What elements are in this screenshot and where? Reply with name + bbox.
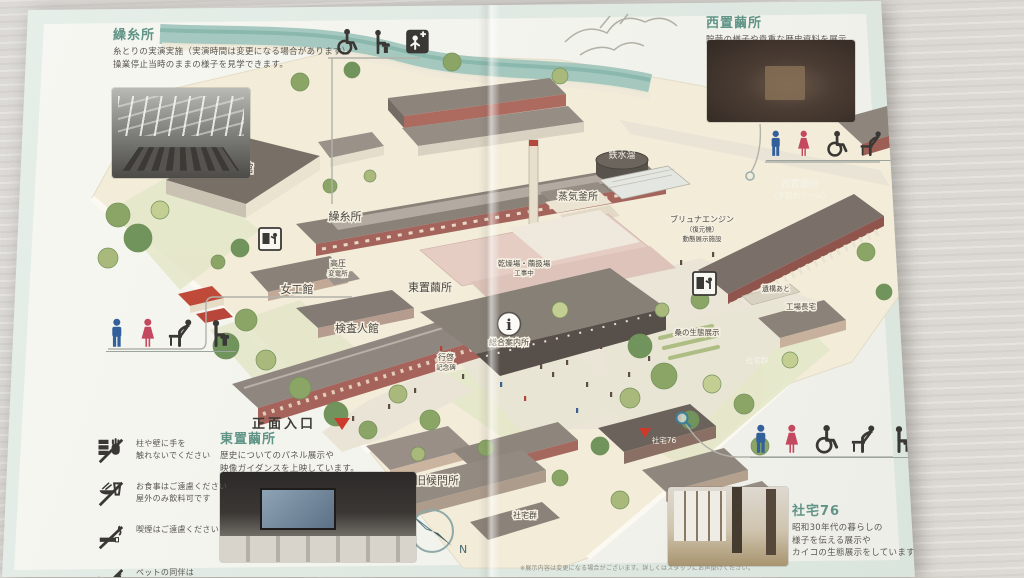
panel-east-warehouse: 東置繭所 歴史についてのパネル展示や 映像ガイダンスを上映しています。	[220, 428, 420, 475]
main-entrance-marker	[334, 418, 350, 430]
main-entrance-label: 正面入口	[252, 413, 316, 432]
no-pets-icon	[96, 565, 126, 578]
first-aid-icon-slot	[895, 130, 920, 157]
rule-text: 柱や壁に手を触れないでください	[136, 436, 210, 461]
wheelchair-icon-slot	[823, 130, 850, 157]
facility-icon-row-west	[766, 130, 920, 161]
toilet-icon	[206, 318, 236, 348]
panel-east-desc1: 歴史についてのパネル展示や	[220, 450, 420, 463]
visiting-rules-list: 柱や壁に手を触れないでくださいお食事はご遠慮ください屋外のみ飲料可です喫煙はご遠…	[96, 436, 246, 578]
svg-text:i: i	[506, 316, 512, 334]
rule-item: お食事はご遠慮ください屋外のみ飲料可です	[96, 479, 246, 513]
map-label: 高圧変電所	[328, 258, 348, 278]
wheelchair-icon	[823, 130, 850, 157]
riverbank-sketch	[565, 14, 677, 55]
panel-reeling-desc2: 操業停止当時のままの様子を見学できます。	[113, 59, 413, 72]
toilet-icon-slot	[206, 318, 236, 348]
exhibit-icon	[693, 272, 716, 295]
exhibit-icon	[259, 228, 281, 250]
information-icon: i	[498, 313, 521, 336]
photographed-pamphlet-scene: N i 総合案内所	[0, 0, 1024, 578]
map-label: 検査人館	[335, 321, 379, 335]
mens-toilet-icon-slot	[750, 424, 772, 454]
womens-toilet-icon	[781, 424, 803, 454]
reeling-mill-photo	[112, 88, 250, 178]
no-food-icon	[96, 479, 126, 509]
map-label: 繰糸所	[329, 209, 362, 223]
rule-item: 喫煙はご遠慮ください	[96, 522, 246, 556]
toilet-icon	[889, 424, 919, 454]
rule-text: お食事はご遠慮ください屋外のみ飲料可です	[136, 479, 227, 504]
diaper-changing-icon	[859, 130, 886, 157]
map-label: 女工館	[281, 282, 314, 296]
rule-item: 柱や壁に手を触れないでください	[96, 436, 246, 470]
first-aid-icon	[405, 28, 430, 55]
wheelchair-icon-slot	[811, 424, 841, 454]
map-label: 社宅76	[652, 435, 677, 445]
first-aid-icon	[928, 424, 956, 454]
no-pets-icon	[96, 565, 126, 578]
panel-shataku-title: 社宅76	[792, 500, 972, 519]
map-label: 鉄水溜	[608, 149, 635, 161]
panel-shataku-desc2: 様子を伝える展示や	[792, 535, 972, 548]
paper-fold-crease	[478, 0, 500, 578]
company-house-photo	[668, 487, 788, 566]
wheelchair-icon-slot	[333, 28, 360, 55]
no-smoking-icon	[96, 522, 126, 552]
map-label: 社宅群	[746, 355, 769, 365]
east-warehouse-photo	[220, 472, 416, 562]
no-food-icon	[96, 479, 126, 513]
map-label: 旧候門所	[415, 473, 459, 487]
map-label: 蒸気釜所	[558, 190, 598, 203]
panel-east-title: 東置繭所	[220, 428, 420, 447]
no-smoking-icon	[96, 522, 126, 556]
rule-item: ペットの同伴はご遠慮ください	[96, 565, 246, 578]
womens-toilet-icon	[137, 318, 159, 348]
diaper-changing-icon-slot	[167, 318, 197, 348]
map-label: 工場長宅	[786, 301, 816, 311]
pamphlet-paper: N i 総合案内所	[0, 0, 1024, 578]
map-label: 遺構あと	[762, 284, 790, 293]
rule-text: 喫煙はご遠慮ください	[136, 522, 219, 536]
west-warehouse-photo	[707, 40, 855, 122]
diaper-changing-icon-slot	[850, 424, 880, 454]
mens-toilet-icon-slot	[106, 318, 128, 348]
panel-shataku-desc1: 昭和30年代の暮らしの	[792, 522, 972, 535]
toilet-icon-slot	[369, 28, 396, 55]
mens-toilet-icon-slot	[766, 130, 785, 157]
mens-toilet-icon	[750, 424, 772, 454]
map-label: 行啓記念碑	[436, 352, 456, 372]
map-label: 東置繭所	[408, 280, 452, 294]
wheelchair-icon	[811, 424, 841, 454]
diaper-changing-icon	[850, 424, 880, 454]
first-aid-icon	[895, 130, 920, 157]
no-touch-icon	[96, 436, 126, 466]
pamphlet-shadow: N i 総合案内所	[0, 0, 1024, 578]
facility-icon-row-left	[106, 318, 236, 352]
toilet-icon	[369, 28, 396, 55]
womens-toilet-icon-slot	[781, 424, 803, 454]
toilet-icon-slot	[889, 424, 919, 454]
rule-text: ペットの同伴はご遠慮ください	[136, 565, 194, 578]
mens-toilet-icon	[766, 130, 785, 157]
womens-toilet-icon-slot	[794, 130, 813, 157]
facility-icon-row-southeast	[750, 424, 956, 458]
map-label: 桑の生態展示	[675, 327, 720, 337]
panel-shataku-desc3: カイコの生態展示をしています。	[792, 547, 972, 560]
first-aid-icon-slot	[405, 28, 430, 55]
compass-n-label: N	[459, 543, 467, 556]
mens-toilet-icon	[106, 318, 128, 348]
diaper-changing-icon-slot	[859, 130, 886, 157]
no-touch-icon	[96, 436, 126, 470]
womens-toilet-icon-slot	[137, 318, 159, 348]
diaper-changing-icon	[167, 318, 197, 348]
facility-icon-row-top	[333, 28, 430, 55]
womens-toilet-icon	[794, 130, 813, 157]
map-label: 社宅群	[513, 510, 537, 520]
panel-company-house-76: 社宅76 昭和30年代の暮らしの 様子を伝える展示や カイコの生態展示をしていま…	[792, 500, 972, 560]
panel-west-title: 西置繭所	[706, 12, 866, 31]
first-aid-icon-slot	[928, 424, 956, 454]
footnote-text: ※展示内容は変更になる場合がございます。詳しくはスタッフにお声掛けください。	[520, 563, 910, 572]
map-label: 西置繭所(多目的ホール)	[775, 178, 826, 200]
wheelchair-icon	[333, 28, 360, 55]
